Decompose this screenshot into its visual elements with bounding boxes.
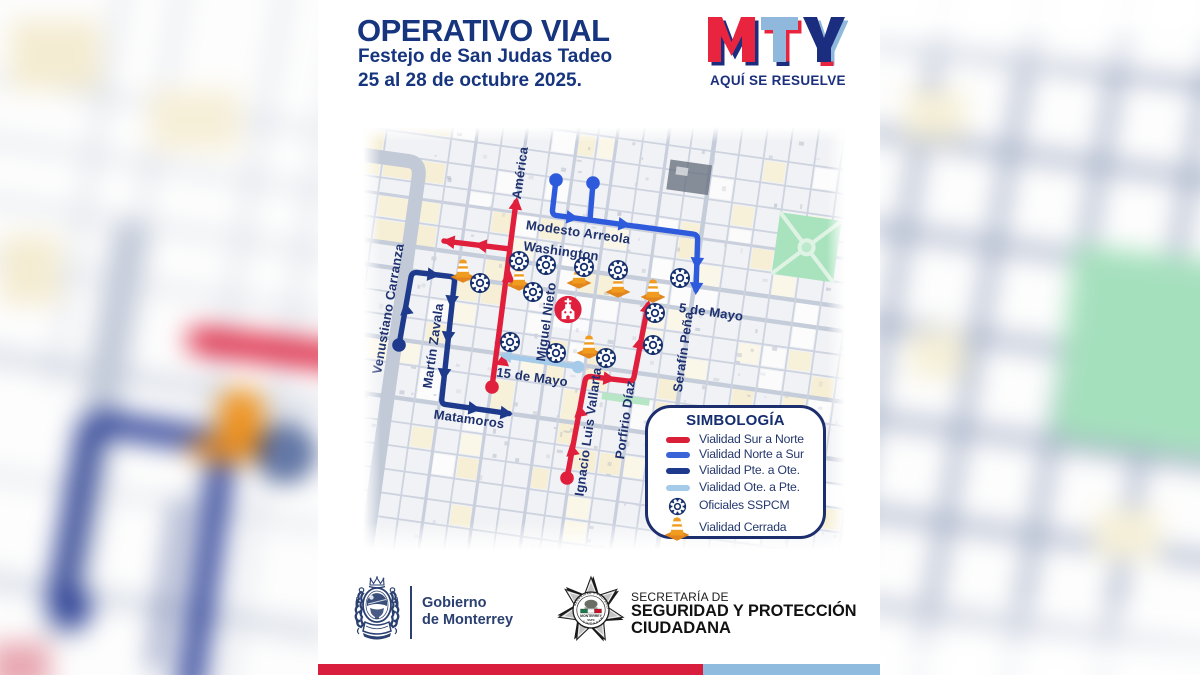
- svg-text:SSPC: SSPC: [587, 618, 595, 622]
